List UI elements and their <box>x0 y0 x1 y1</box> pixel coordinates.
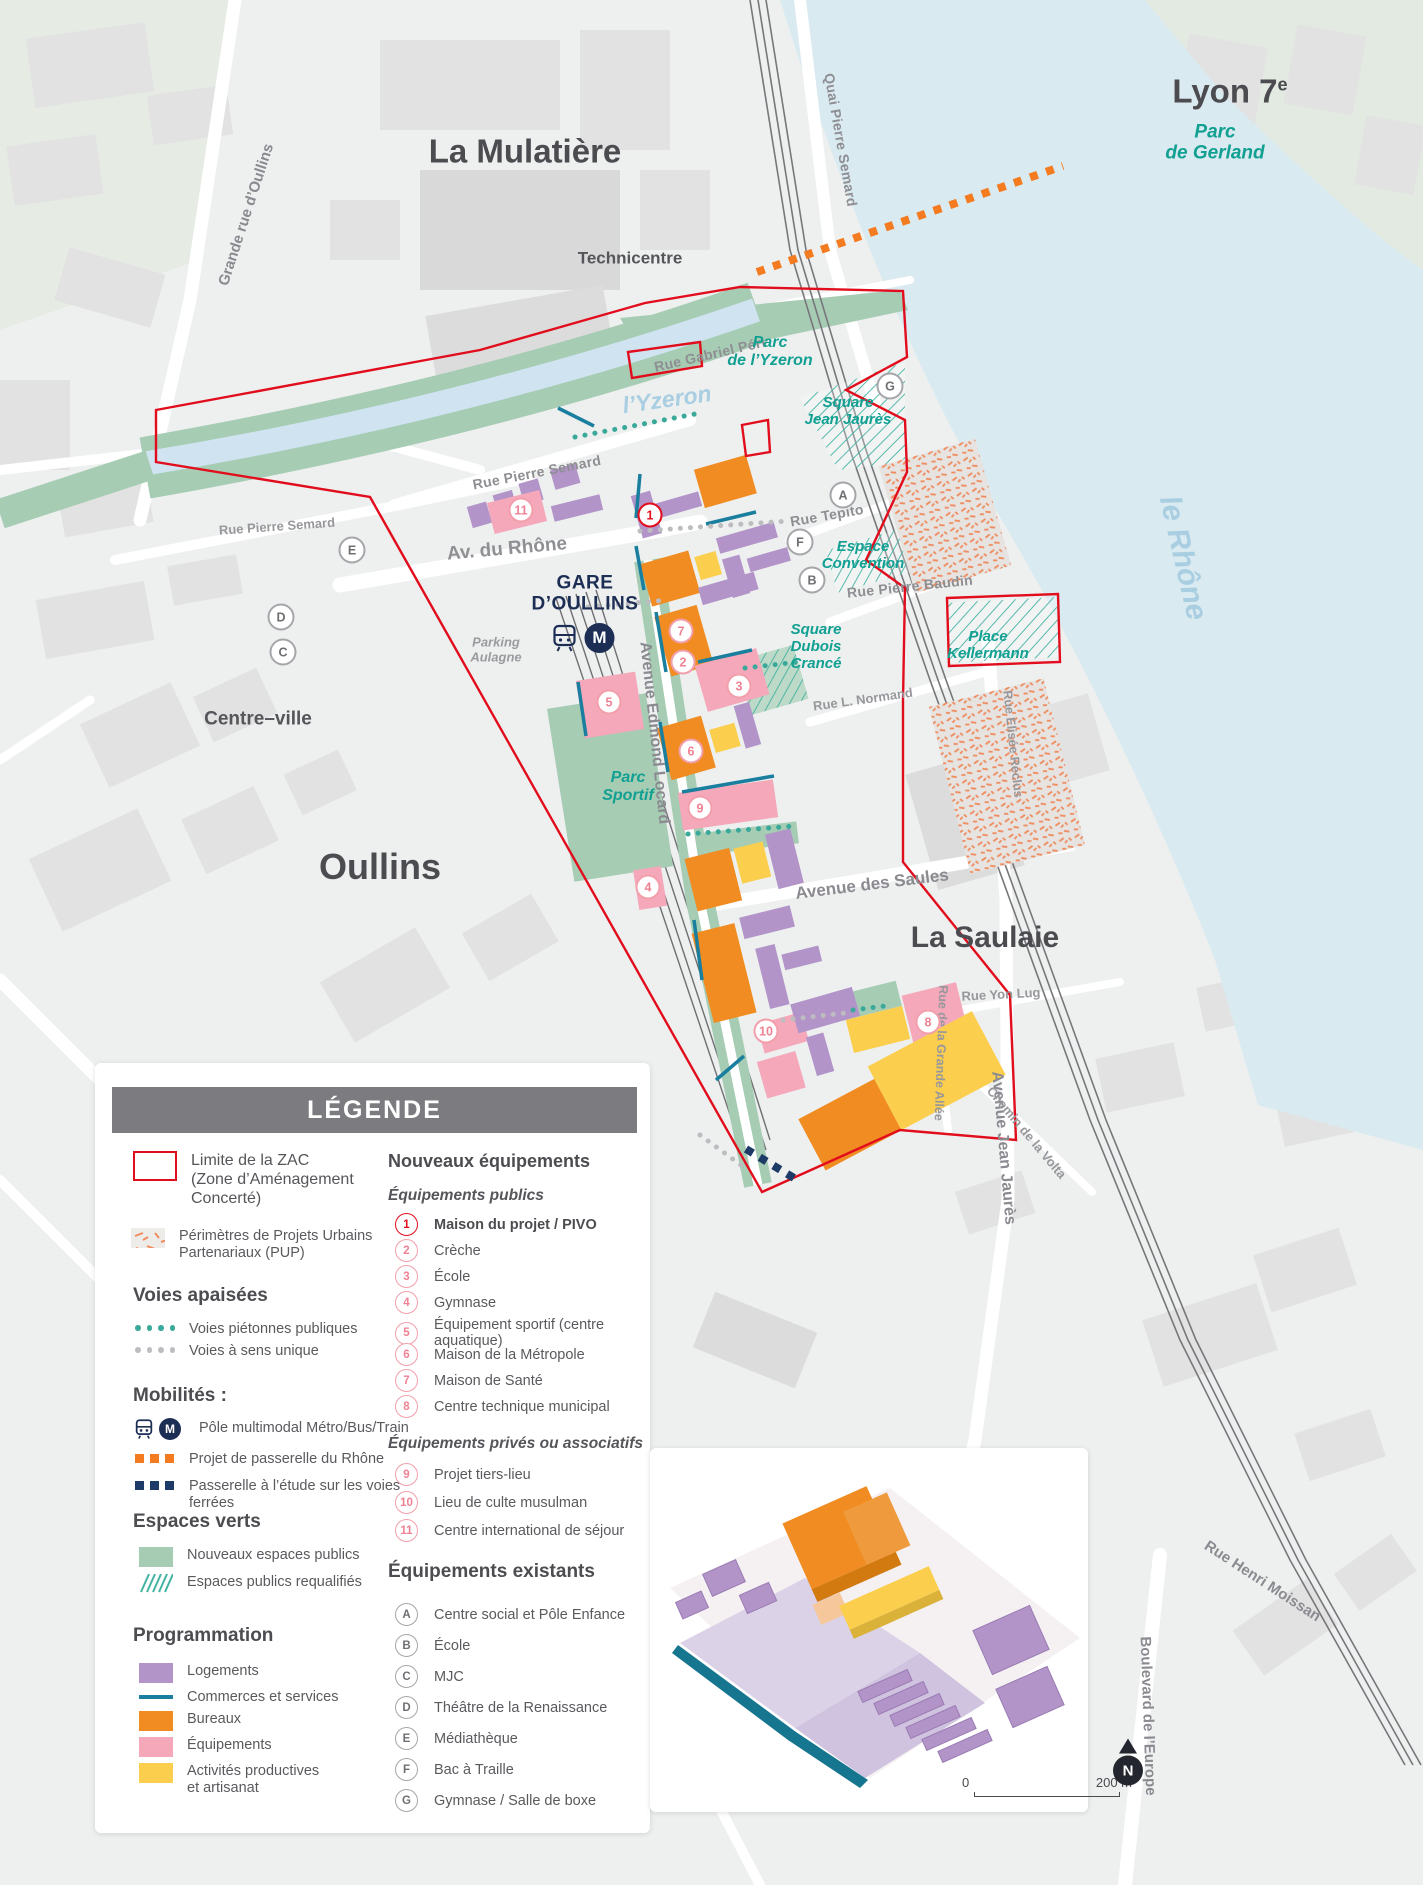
item-6-badge: 6 <box>395 1343 418 1366</box>
tram-icon <box>133 1418 155 1440</box>
item-3-label: École <box>434 1269 470 1285</box>
voies-title: Voies apaisées <box>133 1285 268 1307</box>
item-A-badge: A <box>395 1603 418 1626</box>
equip-item-1: 1Maison du projet / PIVO <box>395 1213 597 1236</box>
espaces-requalifies-row: Espaces publics requalifiés <box>139 1574 362 1594</box>
axonometric-inset <box>650 1448 1088 1812</box>
espaces-requalifies-label: Espaces publics requalifiés <box>187 1574 362 1591</box>
exist-item-C: CMJC <box>395 1665 464 1688</box>
item-2-label: Crèche <box>434 1243 481 1259</box>
map-marker-G: G <box>877 373 904 400</box>
item-F-label: Bac à Traille <box>434 1762 514 1778</box>
zac-swatch <box>133 1151 177 1181</box>
axonometric-render <box>650 1448 1088 1812</box>
item-1-label: Maison du projet / PIVO <box>434 1217 597 1233</box>
voies-sens-unique-label: Voies à sens unique <box>189 1343 319 1360</box>
voies-pietonnes-label: Voies piétonnes publiques <box>189 1321 358 1338</box>
commerces-swatch <box>139 1695 173 1699</box>
map-marker-10: 10 <box>754 1019 779 1044</box>
mobilites-title: Mobilités : <box>133 1385 227 1407</box>
equip-item-8: 8Centre technique municipal <box>395 1395 610 1418</box>
item-C-label: MJC <box>434 1669 464 1685</box>
item-4-label: Gymnase <box>434 1295 496 1311</box>
equip-item-9: 9Projet tiers-lieu <box>395 1463 531 1486</box>
orange-dash-icon <box>135 1454 175 1463</box>
multimodal-label: Pôle multimodal Métro/Bus/Train <box>199 1420 409 1437</box>
scale-line <box>974 1796 1120 1797</box>
tram-icon <box>550 623 580 653</box>
pup-swatch <box>131 1228 165 1248</box>
map-marker-A: A <box>830 482 857 509</box>
multimodal-hub-logo: M <box>550 623 615 653</box>
equip-item-7: 7Maison de Santé <box>395 1369 543 1392</box>
item-7-label: Maison de Santé <box>434 1373 543 1389</box>
item-8-badge: 8 <box>395 1395 418 1418</box>
item-D-badge: D <box>395 1696 418 1719</box>
equipements-existants-title: Équipements existants <box>388 1561 595 1583</box>
equip-item-2: 2Crèche <box>395 1239 481 1262</box>
equipements-prives-title: Équipements privés ou associatifs <box>388 1435 643 1453</box>
item-9-label: Projet tiers-lieu <box>434 1467 531 1483</box>
programmation-activites-row: Activités productives et artisanat <box>139 1763 319 1798</box>
scale-bar: 0 200 m <box>962 1775 1132 1805</box>
equipements-swatch <box>139 1737 173 1757</box>
item-6-label: Maison de la Métropole <box>434 1347 585 1363</box>
item-5-badge: 5 <box>395 1322 418 1345</box>
item-2-badge: 2 <box>395 1239 418 1262</box>
programmation-title: Programmation <box>133 1625 273 1647</box>
item-A-label: Centre social et Pôle Enfance <box>434 1607 625 1623</box>
espaces-verts-title: Espaces verts <box>133 1511 261 1533</box>
programmation-commerces-row: Commerces et services <box>139 1689 338 1706</box>
exist-item-F: FBac à Traille <box>395 1758 514 1781</box>
exist-item-G: GGymnase / Salle de boxe <box>395 1789 596 1812</box>
north-letter: N <box>1113 1756 1143 1786</box>
item-E-label: Médiathèque <box>434 1731 518 1747</box>
equip-item-6: 6Maison de la Métropole <box>395 1343 585 1366</box>
map-marker-2: 2 <box>671 650 696 675</box>
voies-pietonnes-row: Voies piétonnes publiques <box>135 1321 358 1338</box>
green-swatch <box>139 1547 173 1567</box>
teal-hatch-swatch <box>139 1574 173 1594</box>
map-marker-8: 8 <box>916 1010 941 1035</box>
bureaux-label: Bureaux <box>187 1711 241 1728</box>
item-11-label: Centre international de séjour <box>434 1523 624 1539</box>
item-E-badge: E <box>395 1727 418 1750</box>
item-B-badge: B <box>395 1634 418 1657</box>
espaces-nouveaux-row: Nouveaux espaces publics <box>139 1547 360 1567</box>
equip-item-11: 11Centre international de séjour <box>395 1519 624 1542</box>
grey-dots-icon <box>135 1347 175 1353</box>
map-marker-E: E <box>339 537 366 564</box>
north-triangle-icon <box>1119 1739 1137 1754</box>
passerelle-rhone-row: Projet de passerelle du Rhône <box>135 1451 384 1468</box>
navy-dash-icon <box>135 1481 175 1490</box>
passerelle-voies-label: Passerelle à l’étude sur les voies ferré… <box>189 1478 400 1513</box>
item-4-badge: 4 <box>395 1291 418 1314</box>
logements-swatch <box>139 1663 173 1683</box>
item-10-label: Lieu de culte musulman <box>434 1495 587 1511</box>
activites-label: Activités productives et artisanat <box>187 1763 319 1798</box>
equipements-label: Équipements <box>187 1737 272 1754</box>
item-F-badge: F <box>395 1758 418 1781</box>
passerelle-rhone-label: Projet de passerelle du Rhône <box>189 1451 384 1468</box>
commerces-label: Commerces et services <box>187 1689 338 1706</box>
exist-item-A: ACentre social et Pôle Enfance <box>395 1603 625 1626</box>
equip-item-3: 3École <box>395 1265 470 1288</box>
teal-dots-icon <box>135 1325 175 1331</box>
equip-item-10: 10Lieu de culte musulman <box>395 1491 587 1514</box>
passerelle-voies-row: Passerelle à l’étude sur les voies ferré… <box>135 1478 400 1513</box>
item-9-badge: 9 <box>395 1463 418 1486</box>
map-marker-B: B <box>799 567 826 594</box>
item-11-badge: 11 <box>395 1519 418 1542</box>
legend-panel: LÉGENDE Limite de la ZAC (Zone d’Aménage… <box>95 1063 650 1833</box>
activites-swatch <box>139 1763 173 1783</box>
programmation-bureaux-row: Bureaux <box>139 1711 241 1731</box>
item-10-badge: 10 <box>395 1491 418 1514</box>
legend-pup: Périmètres de Projets Urbains Partenaria… <box>131 1228 372 1263</box>
map-marker-F: F <box>787 529 814 556</box>
equipements-publics-title: Équipements publics <box>388 1187 544 1205</box>
north-arrow: N <box>1113 1739 1143 1786</box>
legend-title: LÉGENDE <box>112 1087 637 1133</box>
item-7-badge: 7 <box>395 1369 418 1392</box>
programmation-logements-row: Logements <box>139 1663 259 1683</box>
zac-label: Limite de la ZAC (Zone d’Aménagement Con… <box>191 1151 354 1209</box>
map-marker-3: 3 <box>727 674 752 699</box>
map-marker-C: C <box>270 639 297 666</box>
map-marker-9: 9 <box>688 796 713 821</box>
map-marker-7: 7 <box>669 619 694 644</box>
item-D-label: Théâtre de la Renaissance <box>434 1700 607 1716</box>
pup-label: Périmètres de Projets Urbains Partenaria… <box>179 1228 372 1263</box>
map-marker-11: 11 <box>509 498 534 523</box>
equip-item-4: 4Gymnase <box>395 1291 496 1314</box>
item-3-badge: 3 <box>395 1265 418 1288</box>
logements-label: Logements <box>187 1663 259 1680</box>
bureaux-swatch <box>139 1711 173 1731</box>
metro-m-icon: M <box>585 623 615 653</box>
item-1-badge: 1 <box>395 1213 418 1236</box>
scale-start-label: 0 <box>962 1775 969 1790</box>
map-marker-1: 1 <box>638 503 663 528</box>
exist-item-E: EMédiathèque <box>395 1727 518 1750</box>
item-G-badge: G <box>395 1789 418 1812</box>
espaces-nouveaux-label: Nouveaux espaces publics <box>187 1547 360 1564</box>
map-poster: Grande rue d’Oullins La Mulatière Techni… <box>0 0 1423 1885</box>
map-marker-5: 5 <box>597 690 622 715</box>
nouveaux-equipements-title: Nouveaux équipements <box>388 1151 590 1172</box>
item-B-label: École <box>434 1638 470 1654</box>
item-C-badge: C <box>395 1665 418 1688</box>
exist-item-B: BÉcole <box>395 1634 470 1657</box>
legend-zac: Limite de la ZAC (Zone d’Aménagement Con… <box>133 1151 354 1209</box>
map-marker-6: 6 <box>679 739 704 764</box>
item-G-label: Gymnase / Salle de boxe <box>434 1793 596 1809</box>
exist-item-D: DThéâtre de la Renaissance <box>395 1696 607 1719</box>
multimodal-row: M Pôle multimodal Métro/Bus/Train <box>133 1418 409 1440</box>
item-8-label: Centre technique municipal <box>434 1399 610 1415</box>
programmation-equipements-row: Équipements <box>139 1737 272 1757</box>
map-marker-4: 4 <box>636 875 661 900</box>
metro-m-icon: M <box>159 1418 181 1440</box>
map-marker-D: D <box>268 604 295 631</box>
voies-sens-unique-row: Voies à sens unique <box>135 1343 319 1360</box>
